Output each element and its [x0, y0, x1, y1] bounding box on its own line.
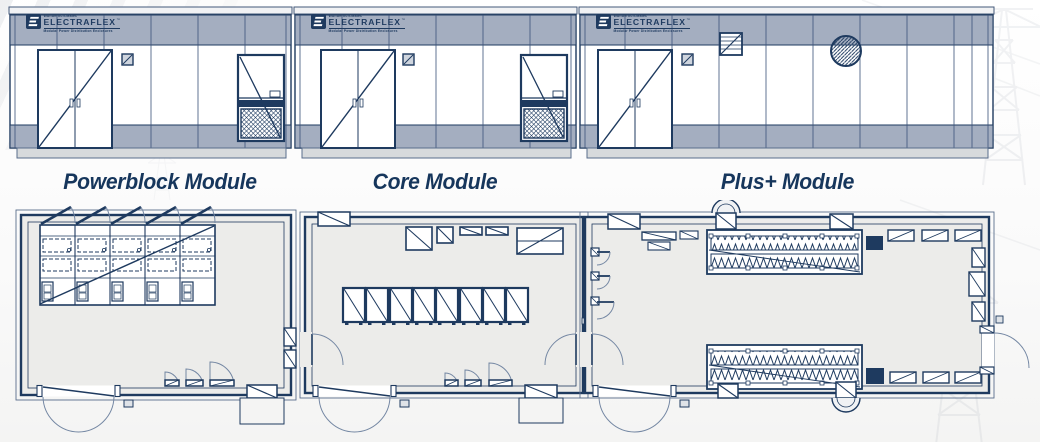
double-door	[598, 50, 672, 148]
plus-floorplan-drawing	[578, 200, 1040, 442]
transformer-top	[866, 236, 883, 250]
wall-vent	[682, 54, 693, 65]
wall-vent	[122, 54, 133, 65]
electraflex-logo-icon	[596, 14, 611, 29]
logo-trademark: ™	[116, 18, 120, 22]
electraflex-logo: Wunderlich-Malec ELECTRAFLEX ™ Modular P…	[596, 14, 690, 33]
electraflex-logo-icon	[311, 14, 326, 29]
electraflex-logo: Wunderlich-Malec ELECTRAFLEX ™ Modular P…	[311, 14, 405, 33]
core-elevation: Wunderlich-Malec ELECTRAFLEX ™ Modular P…	[293, 5, 578, 160]
wall-louver-and-pad	[240, 385, 284, 424]
logo-brand: ELECTRAFLEX	[44, 18, 116, 27]
logo-tagline: Modular Power Distribution Enclosures	[44, 28, 121, 33]
double-door-opening	[313, 386, 396, 433]
logo-tagline: Modular Power Distribution Enclosures	[614, 28, 691, 33]
hvac-unit	[521, 55, 567, 141]
bottom-right-equipment	[890, 372, 981, 383]
battery-rack-top	[707, 230, 862, 274]
bottom-wall-louver	[718, 384, 738, 398]
base-skid	[587, 148, 988, 158]
double-door	[321, 50, 395, 148]
transformer-bottom	[866, 368, 884, 384]
plus-module-title: Plus+ Module	[651, 169, 925, 195]
powerblock-floorplan	[12, 200, 304, 447]
base-skid	[17, 148, 286, 158]
electraflex-logo: Wunderlich-Malec ELECTRAFLEX ™ Modular P…	[26, 14, 120, 33]
intake-louver	[720, 33, 742, 55]
top-exhaust-fan	[712, 200, 740, 229]
logo-trademark: ™	[401, 18, 405, 22]
top-right-equipment	[888, 230, 981, 241]
plus-floorplan	[578, 200, 1040, 447]
exterior-fixture	[124, 400, 133, 407]
switchgear-row	[343, 288, 528, 325]
logo-tagline: Modular Power Distribution Enclosures	[329, 28, 406, 33]
bottom-exhaust-fan	[832, 382, 860, 412]
top-wall-louver	[318, 212, 350, 226]
exterior-fixture	[400, 400, 409, 407]
double-door	[38, 50, 112, 148]
exterior-fixture	[680, 400, 689, 407]
double-door-opening	[37, 386, 120, 433]
core-module-title: Core Module	[334, 169, 536, 195]
hvac-unit	[238, 55, 284, 141]
logo-brand: ELECTRAFLEX	[329, 18, 401, 27]
wall-vent	[403, 54, 414, 65]
logo-trademark: ™	[686, 18, 690, 22]
core-floorplan	[298, 200, 592, 447]
plus-elevation: Wunderlich-Malec ELECTRAFLEX ™ Modular P…	[578, 5, 995, 160]
diagram-canvas: Wunderlich-Malec ELECTRAFLEX ™ Modular P…	[0, 0, 1040, 442]
base-skid	[302, 148, 571, 158]
electraflex-logo-icon	[26, 14, 41, 29]
powerblock-floorplan-drawing	[12, 200, 304, 442]
core-floorplan-drawing	[298, 200, 592, 442]
powerblock-module-title: Powerblock Module	[40, 169, 280, 195]
double-door-opening	[593, 386, 676, 433]
wall-louver-and-pad	[519, 385, 563, 423]
logo-brand: ELECTRAFLEX	[614, 18, 686, 27]
right-wall-equipment	[969, 248, 985, 321]
powerblock-elevation: Wunderlich-Malec ELECTRAFLEX ™ Modular P…	[8, 5, 293, 160]
exhaust-fan-circle	[831, 36, 861, 66]
